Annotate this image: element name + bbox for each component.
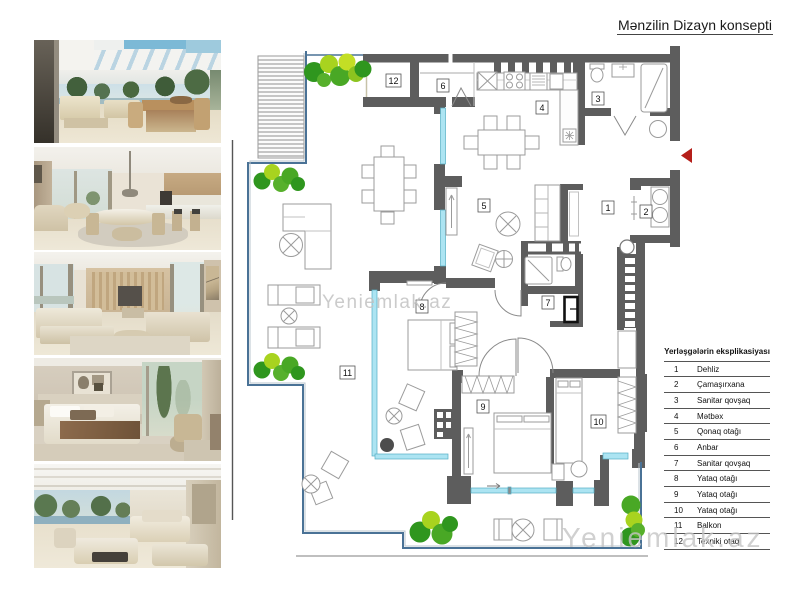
svg-text:10: 10 bbox=[593, 417, 603, 427]
svg-text:11: 11 bbox=[343, 368, 352, 378]
svg-text:2: 2 bbox=[643, 207, 648, 217]
svg-text:5: 5 bbox=[481, 201, 486, 211]
svg-text:1: 1 bbox=[605, 203, 610, 213]
svg-text:Yeniemlak.az: Yeniemlak.az bbox=[322, 292, 452, 313]
svg-text:9: 9 bbox=[480, 402, 485, 412]
svg-text:4: 4 bbox=[539, 103, 544, 113]
svg-text:6: 6 bbox=[440, 81, 445, 91]
svg-text:Yeniemlak.az: Yeniemlak.az bbox=[562, 522, 764, 553]
svg-text:7: 7 bbox=[545, 298, 550, 308]
svg-text:12: 12 bbox=[388, 76, 398, 86]
svg-text:3: 3 bbox=[595, 94, 600, 104]
